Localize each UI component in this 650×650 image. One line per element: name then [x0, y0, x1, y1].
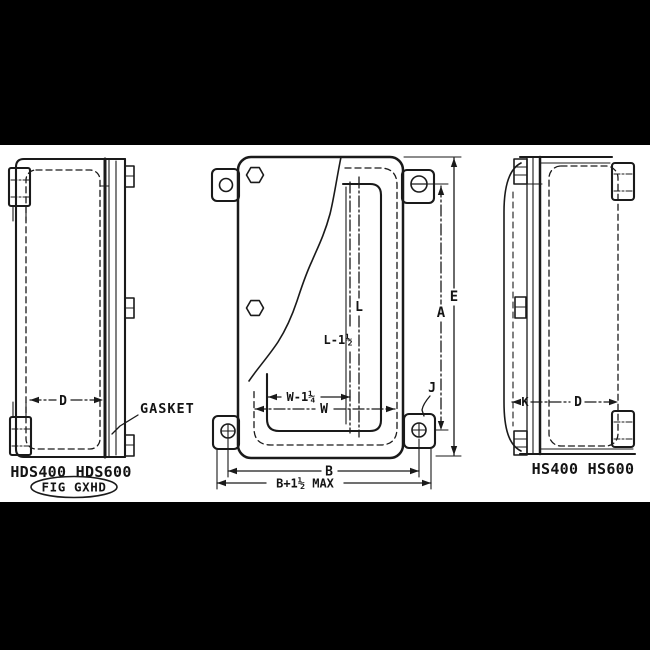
- dim-b-max-label: B+1½ MAX: [276, 477, 335, 491]
- right-model-label: HS400 HS600: [532, 460, 635, 478]
- figure-label: FIG GXHD: [41, 480, 106, 495]
- dim-w-label: W: [320, 402, 328, 417]
- enclosure-technical-drawing: D GASKET HDS400 HDS600 FIG GXHD: [0, 0, 650, 650]
- dim-w-minus-label: W-1¼: [287, 390, 316, 404]
- drawing-sheet: D GASKET HDS400 HDS600 FIG GXHD: [0, 0, 650, 650]
- dim-j-label: J: [428, 381, 436, 396]
- gasket-label: GASKET: [140, 401, 195, 417]
- dim-a-label: A: [437, 305, 446, 321]
- dim-l-label: L: [355, 300, 363, 315]
- dim-l-minus-label: L-1½: [324, 333, 353, 347]
- dim-k-label: K: [521, 395, 529, 409]
- left-model-label: HDS400 HDS600: [10, 463, 131, 481]
- dim-d-label: D: [574, 395, 582, 410]
- dim-e-label: E: [450, 289, 458, 305]
- dim-d-label: D: [59, 394, 67, 409]
